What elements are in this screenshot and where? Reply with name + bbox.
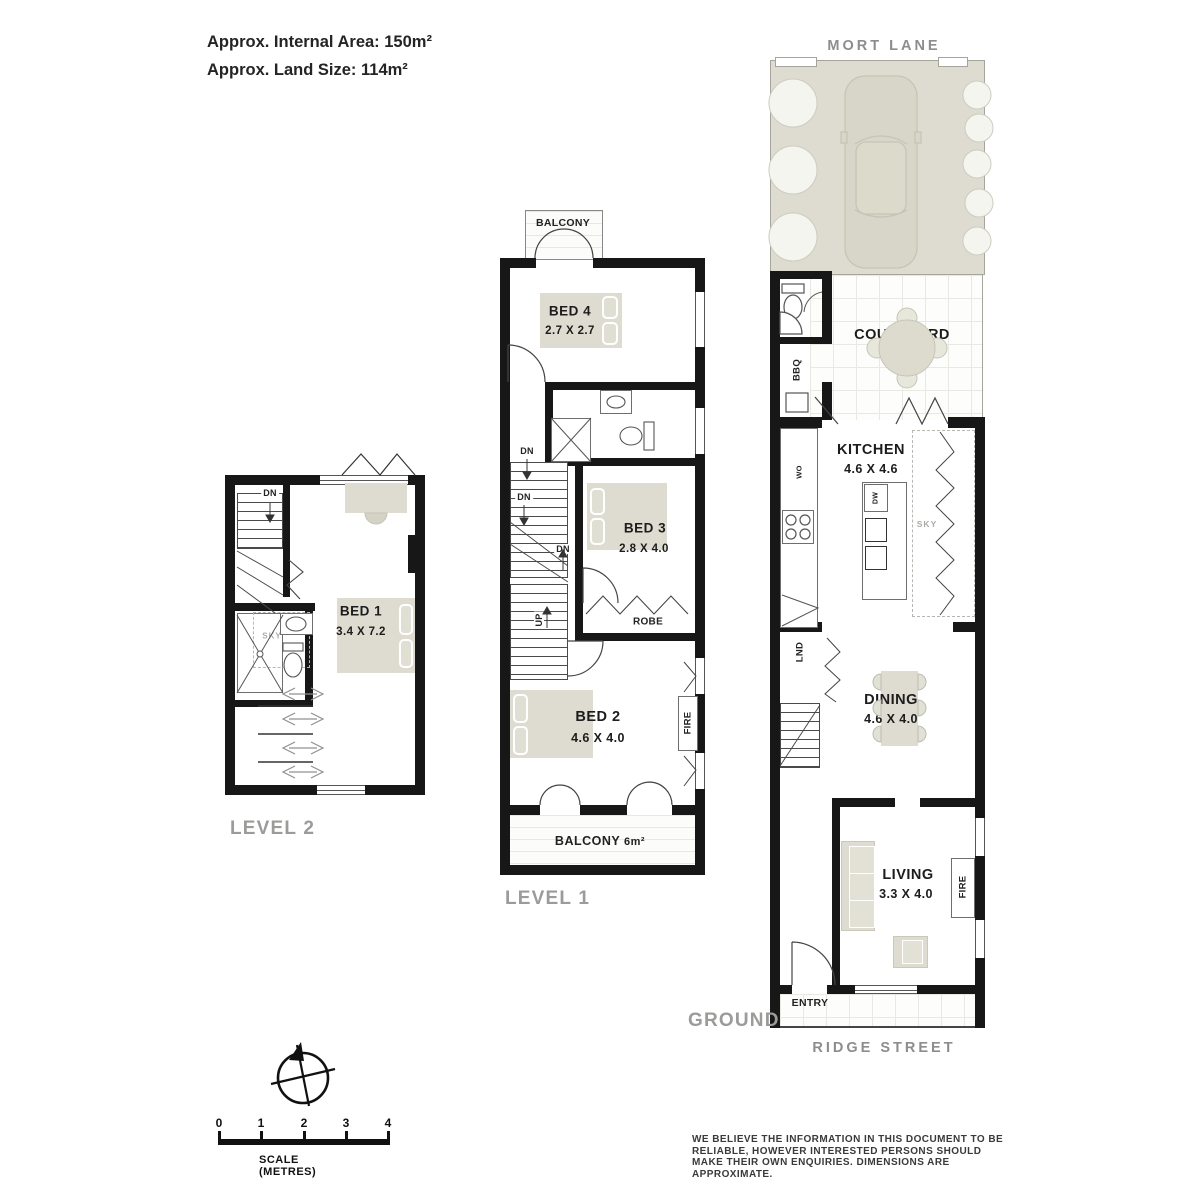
- basin: [607, 396, 625, 408]
- basin: [286, 617, 306, 631]
- scale-tick-label: 0: [216, 1116, 223, 1130]
- scale-bar: 0 1 2 3 4 SCALE (METRES): [214, 1112, 394, 1174]
- car: [841, 76, 921, 268]
- level1-label: LEVEL 1: [505, 888, 590, 910]
- fridge-outline: [782, 595, 818, 626]
- toilet: [620, 422, 654, 450]
- ground-linework: [770, 60, 985, 1030]
- wardrobe-shelves: [258, 706, 313, 762]
- level2-plan: DN BED 1 3.4 X 7.2 SKY: [225, 455, 425, 800]
- level2-linework: [225, 455, 425, 800]
- dining-chairs: [873, 674, 926, 742]
- level1-linework: [500, 210, 705, 900]
- land-size-text: Approx. Land Size: 114m²: [207, 56, 432, 84]
- casement-mark: [684, 756, 696, 786]
- stair-arrows: [266, 503, 274, 522]
- stair-arrows: [520, 459, 567, 628]
- winder-lines: [510, 522, 568, 582]
- scale-bar-line: [218, 1139, 390, 1145]
- bifold-door: [287, 560, 303, 599]
- ground-label: GROUND: [688, 1010, 780, 1032]
- scale-tick-label: 1: [258, 1116, 265, 1130]
- french-doors-arc: [535, 229, 593, 258]
- level2-label: LEVEL 2: [230, 818, 315, 840]
- wardrobe-slider-arrows: [283, 688, 323, 778]
- casement-mark: [684, 662, 696, 692]
- street-label-mort-lane: MORT LANE: [827, 38, 940, 54]
- courtyard-table: [867, 308, 947, 388]
- scale-tick-label: 4: [385, 1116, 392, 1130]
- scale-tick-label: 3: [343, 1116, 350, 1130]
- door-arc: [583, 568, 618, 603]
- toilet: [283, 643, 303, 677]
- wc-door-arc: [804, 292, 822, 312]
- compass-icon: [262, 1038, 346, 1122]
- level1-plan: BALCONY BED 4 2.7 X 2.7 DN DN: [500, 210, 705, 900]
- door-arc: [508, 345, 545, 382]
- robe-doors: [586, 596, 688, 614]
- entry-door-arc: [792, 942, 835, 985]
- french-doors-arc: [540, 785, 580, 805]
- disclaimer-text: WE BELIEVE THE INFORMATION IN THIS DOCUM…: [692, 1134, 1004, 1180]
- floorplan-page: Approx. Internal Area: 150m² Approx. Lan…: [0, 0, 1189, 1195]
- french-doors-arc: [627, 782, 672, 805]
- bifold-door: [896, 398, 948, 424]
- scale-caption: SCALE (METRES): [259, 1154, 349, 1178]
- stair-diagonal: [780, 705, 820, 766]
- door-leaf: [815, 397, 838, 424]
- street-label-ridge-street: RIDGE STREET: [812, 1040, 955, 1056]
- shower-drain: [257, 651, 263, 657]
- skylight-zigzag: [936, 432, 954, 615]
- door-arc: [568, 641, 603, 676]
- roof-window-marks: [342, 454, 415, 475]
- shower-cross: [551, 418, 591, 462]
- winder-lines: [237, 551, 283, 613]
- scale-tick-label: 2: [301, 1116, 308, 1130]
- ground-floor-plan: BBQ WO DW SKY LND FIRE LAWN CO: [770, 60, 985, 1030]
- bbq-unit: [786, 393, 808, 412]
- cooktop-burners: [786, 515, 810, 539]
- wc-fixtures: [780, 284, 804, 334]
- internal-area-text: Approx. Internal Area: 150m²: [207, 28, 432, 56]
- desk-chair: [365, 513, 387, 524]
- header-stats: Approx. Internal Area: 150m² Approx. Lan…: [207, 28, 432, 84]
- laundry-bifold-door: [825, 638, 840, 702]
